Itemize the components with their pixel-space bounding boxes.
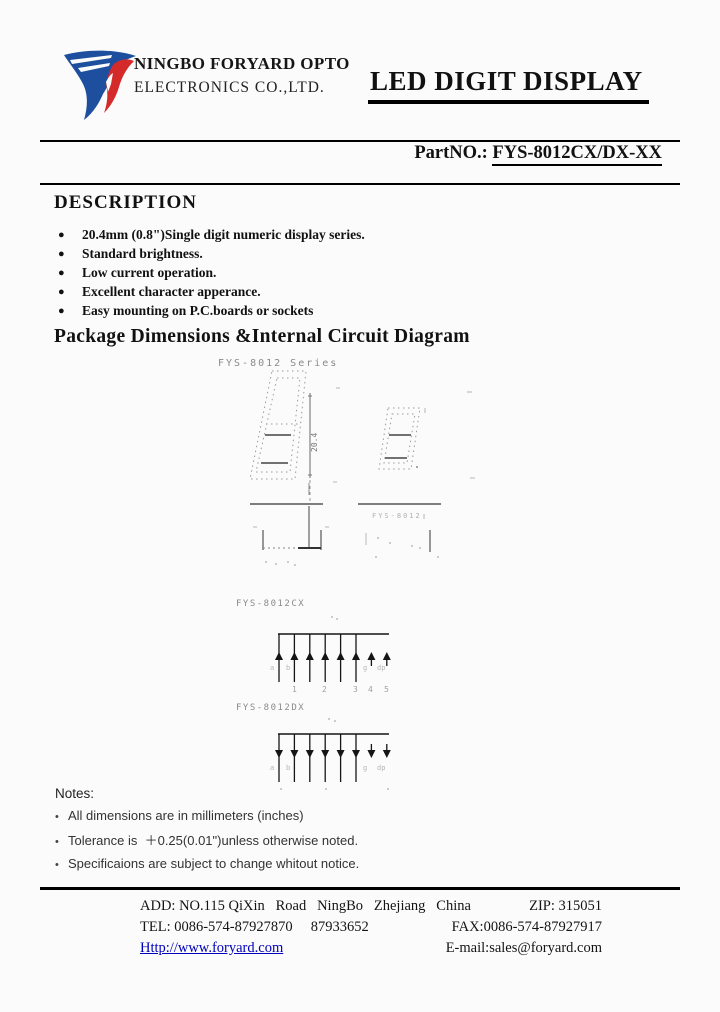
svg-text:4: 4 xyxy=(368,685,373,694)
bullet-icon: ● xyxy=(58,302,82,321)
circuit-dx-leads xyxy=(279,734,387,782)
bullet-text: Standard brightness. xyxy=(82,246,203,261)
notes-section: Notes: •All dimensions are in millimeter… xyxy=(55,786,359,871)
notes-heading: Notes: xyxy=(55,786,359,801)
note-item: •Tolerance is ＋0.25(0.01")unless otherwi… xyxy=(55,830,359,849)
company-logo-icon xyxy=(56,48,144,124)
svg-text:b: b xyxy=(286,764,290,772)
list-item: ●20.4mm (0.8")Single digit numeric displ… xyxy=(58,225,365,244)
list-item: ●Low current operation. xyxy=(58,263,365,282)
footer-web-row: Http://www.foryard.com E-mail:sales@fory… xyxy=(140,938,602,959)
digit-segments-small xyxy=(385,435,411,458)
svg-text:g: g xyxy=(363,664,367,672)
company-name-line1: NINGBO FORYARD OPTO xyxy=(134,54,350,74)
list-item: ●Easy mounting on P.C.boards or sockets xyxy=(58,301,365,320)
footer-zip: ZIP: 315051 xyxy=(529,896,602,917)
bullet-icon: ● xyxy=(58,264,82,283)
footer-fax: FAX:0086-574-87927917 xyxy=(452,917,602,938)
height-dimension-value: 20.4 xyxy=(310,433,319,452)
company-name-line2: ELECTRONICS CO.,LTD. xyxy=(134,79,350,97)
note-text: Tolerance is ＋0.25(0.01")unless otherwis… xyxy=(68,833,358,848)
bullet-text: Low current operation. xyxy=(82,265,216,280)
bullet-text: 20.4mm (0.8")Single digit numeric displa… xyxy=(82,227,365,242)
note-text: All dimensions are in millimeters (inche… xyxy=(68,808,304,823)
divider-description xyxy=(40,183,680,185)
bullet-text: Easy mounting on P.C.boards or sockets xyxy=(82,303,313,318)
svg-text:b: b xyxy=(286,664,290,672)
diode-symbols-down xyxy=(275,750,391,758)
circuit-cx-segment-letters: a b g dp xyxy=(270,664,385,672)
package-dimensions-diagram: FYS-8012 Series 20.4 xyxy=(150,352,520,794)
description-bullet-list: ●20.4mm (0.8")Single digit numeric displ… xyxy=(58,225,365,320)
divider-footer xyxy=(40,887,680,890)
package-section-heading: Package Dimensions &Internal Circuit Dia… xyxy=(54,326,470,348)
circuit-cx-pin-numbers: 1 2 3 4 5 xyxy=(292,685,389,694)
part-number-label: PartNO.: xyxy=(414,143,492,163)
note-text: Specificaions are subject to change whit… xyxy=(68,856,359,871)
footer-phone-row: TEL: 0086-574-87927870 87933652 FAX:0086… xyxy=(140,917,602,938)
svg-text:1: 1 xyxy=(292,685,297,694)
note-item: •All dimensions are in millimeters (inch… xyxy=(55,808,359,823)
part-number-value: FYS-8012CX/DX-XX xyxy=(492,143,662,166)
side-view-label: FYS-8012 xyxy=(372,512,422,520)
note-item: •Specificaions are subject to change whi… xyxy=(55,856,359,871)
footer-address-row: ADD: NO.115 QiXin Road NingBo Zhejiang C… xyxy=(140,896,602,917)
description-heading: DESCRIPTION xyxy=(54,192,197,214)
circuit-cx-label: FYS-8012CX xyxy=(236,599,305,609)
list-item: ●Excellent character apperance. xyxy=(58,282,365,301)
footer-contact-block: ADD: NO.115 QiXin Road NingBo Zhejiang C… xyxy=(140,896,602,959)
bullet-text: Excellent character apperance. xyxy=(82,284,261,299)
bullet-icon: ● xyxy=(58,245,82,264)
svg-text:dp: dp xyxy=(377,764,385,772)
note-bullet-icon: • xyxy=(55,811,68,823)
datasheet-page: { "header": { "company_line1": "NINGBO F… xyxy=(0,0,720,1012)
side-view-left xyxy=(250,483,329,566)
bullet-icon: ● xyxy=(58,226,82,245)
footer-email: E-mail:sales@foryard.com xyxy=(446,938,602,959)
circuit-dx-label: FYS-8012DX xyxy=(236,703,305,713)
circuit-diagram-cx: FYS-8012CX a b g dp 1 2 3 4 5 xyxy=(236,599,391,694)
list-item: ●Standard brightness. xyxy=(58,244,365,263)
series-label: FYS-8012 Series xyxy=(218,358,338,369)
svg-text:dp: dp xyxy=(377,664,385,672)
height-dimension: 20.4 xyxy=(308,393,319,502)
circuit-diagram-dx: FYS-8012DX a b g dp xyxy=(236,703,391,790)
note-bullet-icon: • xyxy=(55,836,68,848)
circuit-dx-segment-letters: a b g dp xyxy=(270,764,385,772)
footer-address: ADD: NO.115 QiXin Road NingBo Zhejiang C… xyxy=(140,896,471,917)
svg-text:2: 2 xyxy=(322,685,327,694)
footer-tel: TEL: 0086-574-87927870 87933652 xyxy=(140,917,369,938)
svg-text:a: a xyxy=(270,664,274,672)
part-number-line: PartNO.: FYS-8012CX/DX-XX xyxy=(414,143,662,164)
svg-text:3: 3 xyxy=(353,685,358,694)
svg-text:5: 5 xyxy=(384,685,389,694)
bullet-icon: ● xyxy=(58,283,82,302)
company-name: NINGBO FORYARD OPTO ELECTRONICS CO.,LTD. xyxy=(134,54,350,97)
svg-text:a: a xyxy=(270,764,274,772)
website-link[interactable]: Http://www.foryard.com xyxy=(140,938,283,959)
divider-top xyxy=(40,140,680,142)
digit-segments-large xyxy=(261,435,291,463)
side-view-right: FYS-8012 xyxy=(358,504,441,558)
page-title: LED DIGIT DISPLAY xyxy=(368,66,649,104)
digit-outline-small xyxy=(379,408,420,469)
diode-symbols-up xyxy=(275,652,391,660)
decimal-point-mark xyxy=(416,466,418,468)
svg-text:g: g xyxy=(363,764,367,772)
note-bullet-icon: • xyxy=(55,859,68,871)
